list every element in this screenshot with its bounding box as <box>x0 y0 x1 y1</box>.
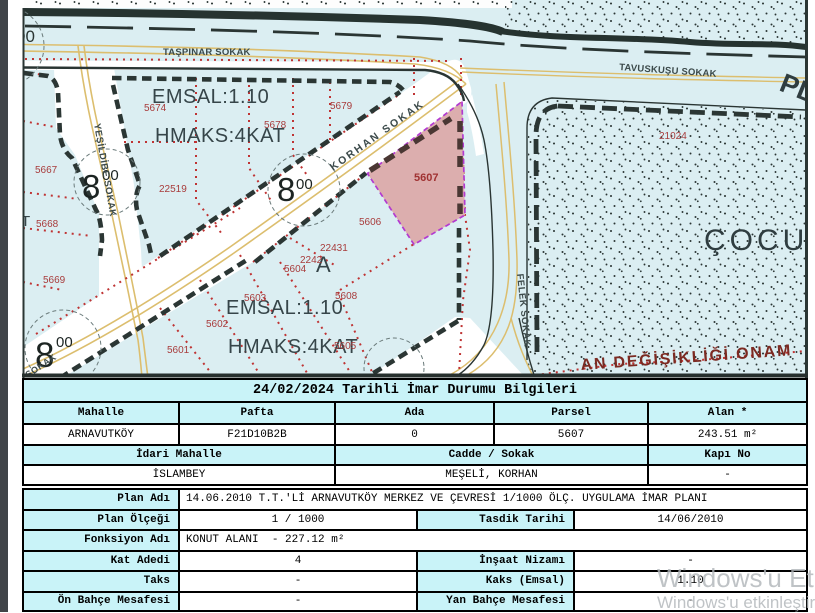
svg-text:22519: 22519 <box>159 184 187 195</box>
svg-text:TAŞPINAR SOKAK: TAŞPINAR SOKAK <box>163 47 251 58</box>
svg-text:5602: 5602 <box>206 319 229 330</box>
svg-text:5668: 5668 <box>36 219 59 230</box>
svg-text:T: T <box>21 213 30 230</box>
svg-text:5605: 5605 <box>334 341 357 352</box>
svg-text:5604: 5604 <box>284 264 307 275</box>
svg-text:5678: 5678 <box>264 120 287 131</box>
svg-text:5603: 5603 <box>244 293 267 304</box>
svg-text:5667: 5667 <box>35 165 58 176</box>
svg-text:8: 8 <box>277 171 295 208</box>
svg-text:00: 00 <box>296 176 313 193</box>
svg-text:8: 8 <box>82 168 100 205</box>
svg-text:5674: 5674 <box>144 103 167 114</box>
svg-text:00: 00 <box>56 334 73 351</box>
svg-text:5607: 5607 <box>414 172 438 184</box>
svg-text:22431: 22431 <box>320 243 348 254</box>
svg-text:5601: 5601 <box>167 345 190 356</box>
svg-text:5679: 5679 <box>330 101 353 112</box>
svg-text:5608: 5608 <box>335 291 358 302</box>
svg-text:ÇOCUK: ÇOCUK <box>704 224 815 257</box>
svg-text:5669: 5669 <box>43 275 66 286</box>
svg-text:21024: 21024 <box>659 131 687 142</box>
svg-text:5606: 5606 <box>359 217 382 228</box>
svg-text:EMSAL:1.10: EMSAL:1.10 <box>152 86 269 108</box>
